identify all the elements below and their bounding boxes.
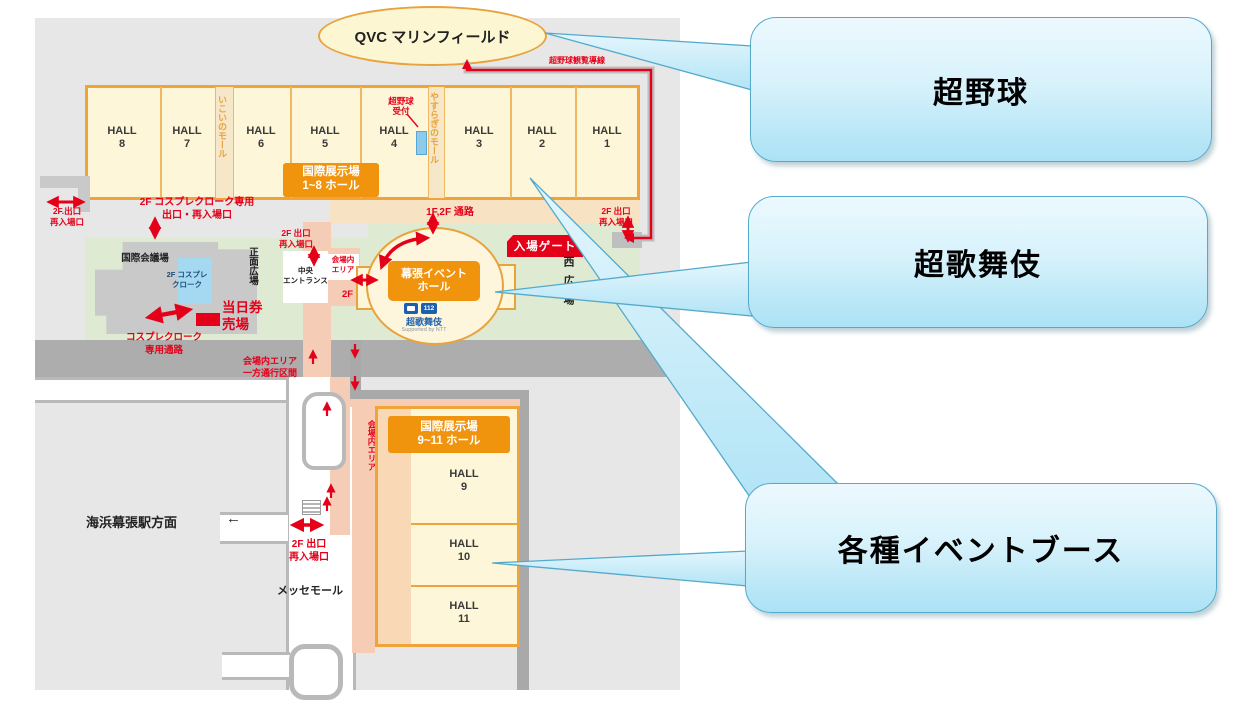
exhibition-1-8-label: 国際展示場 1~8 ホール	[283, 163, 379, 197]
hall-6-label: HALL 6	[233, 125, 289, 150]
slide-canvas: { "callouts": { "baseball": "超野球", "kabu…	[0, 0, 1252, 706]
baseball-reception-label: 超野球 受付	[378, 96, 424, 116]
passage-1f2f-label: 1F,2F 通路	[405, 203, 495, 218]
callout-booths-label: 各種イベントブース	[838, 526, 1125, 570]
conference-center-label: 国際会議場	[110, 250, 180, 264]
hall-divider-9-10	[411, 523, 517, 525]
callout-kabuki-label: 超歌舞伎	[914, 240, 1042, 284]
niconico-tv-icon	[404, 303, 418, 314]
yasuragi-mall-label: やすらぎのモール	[428, 92, 441, 198]
crosswalk-icon	[302, 500, 321, 515]
event-hall-label: 幕張イベント ホール	[388, 261, 480, 301]
road-loop	[302, 392, 346, 470]
messe-mall-label: メッセモール	[266, 582, 354, 598]
hall-divider-10-11	[411, 585, 517, 587]
logo-112-badge: 112	[421, 303, 437, 314]
callout-baseball: 超野球	[750, 17, 1212, 162]
baseball-reception-marker	[416, 131, 427, 155]
ikoi-mall-label: いこいのモール	[216, 95, 229, 195]
cosplay-cloak-room-label: 2F コスプレ クローク	[158, 270, 216, 290]
stadium-label: QVC マリンフィールド	[355, 26, 511, 47]
callout-booths: 各種イベントブース	[745, 483, 1217, 613]
entrance-gate-banner: 入場ゲート	[507, 235, 583, 257]
station-direction-label: 海浜幕張駅方面	[86, 512, 226, 531]
callout-kabuki: 超歌舞伎	[748, 196, 1208, 328]
road-loop-south	[289, 644, 343, 700]
stadium-oval: QVC マリンフィールド	[318, 6, 547, 66]
hall-7-label: HALL 7	[159, 125, 215, 150]
exit-2f-center-label: 2F 出口 再入場口	[266, 228, 326, 250]
road-west	[35, 377, 305, 403]
station-arrow: ←	[226, 510, 248, 527]
front-plaza-label: 正面広場	[245, 247, 259, 307]
hall-11-label: HALL 11	[439, 600, 489, 625]
hall-1-label: HALL 1	[579, 125, 635, 150]
callout-baseball-label: 超野球	[933, 68, 1029, 112]
baseball-route-label: 超野球観覧導線	[549, 55, 659, 66]
exit-2f-right-label: 2F 出口 再入場口	[585, 206, 647, 228]
day-ticket-booth	[196, 313, 220, 326]
exhibition-9-11-label: 国際展示場 9~11 ホール	[388, 416, 510, 453]
road-stub-southwest	[222, 652, 290, 680]
hall-4-label: HALL 4	[366, 125, 422, 150]
hall-5-label: HALL 5	[297, 125, 353, 150]
hall-3-label: HALL 3	[451, 125, 507, 150]
hall-2-label: HALL 2	[514, 125, 570, 150]
cosplay-cloak-exit-label: 2F コスプレクローク専用 出口・再入場口	[113, 196, 281, 222]
hall-10-label: HALL 10	[439, 538, 489, 563]
day-ticket-label: 当日券 売場	[222, 300, 278, 334]
hall-8-label: HALL 8	[94, 125, 150, 150]
one-way-label: 会場内エリア 一方通行区間	[232, 355, 308, 379]
central-entrance-label: 中央 エントランス	[281, 266, 330, 286]
ntt-credit: Supported by NTT	[390, 327, 458, 333]
right-exit-structure	[612, 232, 642, 248]
exit-2f-bottom-label: 2F 出口 再入場口	[278, 538, 340, 564]
hall-divider	[510, 87, 512, 198]
cosplay-passage-label: コスプレクローク 専用通路	[114, 332, 214, 358]
west-plaza-label: 西広場	[560, 256, 576, 334]
exit-2f-left-label: 2F.出口 再入場口	[38, 206, 96, 228]
hall-divider	[575, 87, 577, 198]
hall-9-label: HALL 9	[439, 468, 489, 493]
service-road-horizontal	[350, 390, 529, 399]
